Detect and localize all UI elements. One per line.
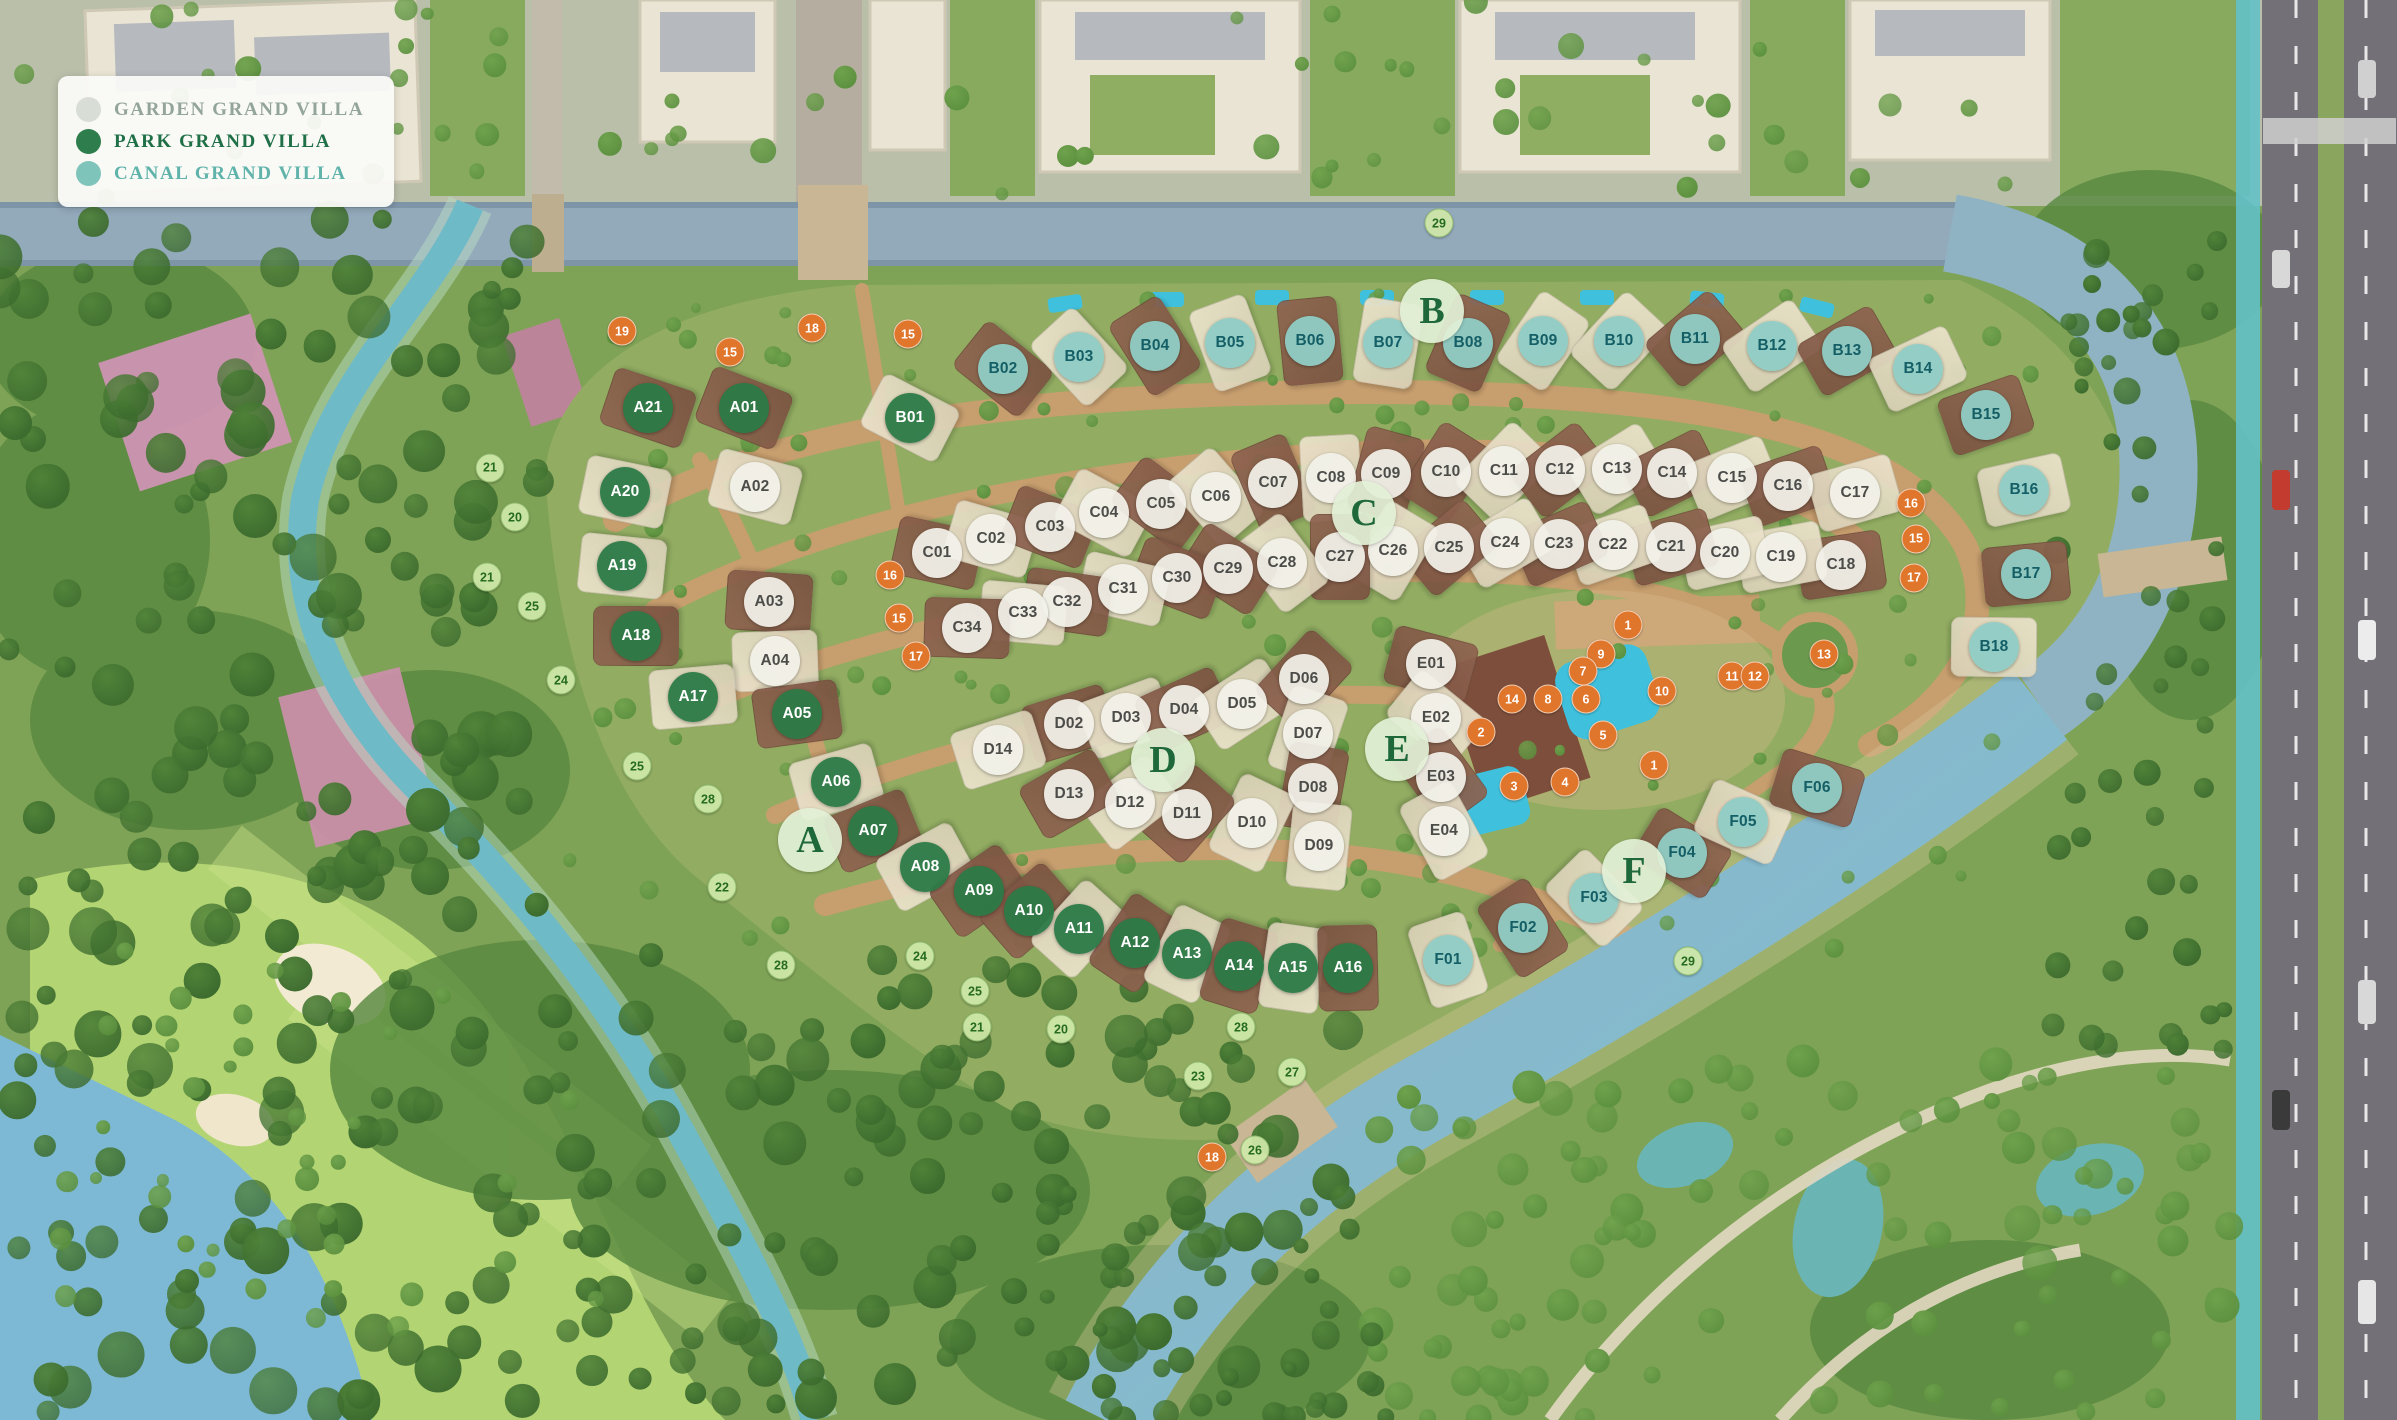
- villa-label-D09: D09: [1294, 821, 1344, 871]
- orange-marker-14: 14: [1498, 685, 1527, 714]
- villa-label-B04: B04: [1130, 321, 1180, 371]
- villa-label-C07: C07: [1248, 458, 1298, 508]
- green-marker-21: 21: [963, 1013, 992, 1042]
- villa-label-B02: B02: [978, 344, 1028, 394]
- green-marker-25: 25: [961, 977, 990, 1006]
- green-marker-23: 23: [1184, 1062, 1213, 1091]
- villa-label-D13: D13: [1044, 769, 1094, 819]
- villa-label-C18: C18: [1816, 540, 1866, 590]
- canal-dot-icon: [76, 161, 101, 186]
- green-marker-24: 24: [547, 666, 576, 695]
- villa-label-C34: C34: [942, 603, 992, 653]
- villa-label-F01: F01: [1423, 935, 1473, 985]
- villa-label-A09: A09: [954, 866, 1004, 916]
- villa-label-B05: B05: [1205, 318, 1255, 368]
- villa-label-D06: D06: [1279, 654, 1329, 704]
- villa-label-D14: D14: [973, 725, 1023, 775]
- villa-label-C31: C31: [1098, 564, 1148, 614]
- villa-label-F02: F02: [1498, 903, 1548, 953]
- green-marker-29: 29: [1425, 209, 1454, 238]
- villa-label-C28: C28: [1257, 538, 1307, 588]
- legend-item-park: PARK GRAND VILLA: [76, 129, 376, 154]
- section-letter-E: E: [1365, 717, 1429, 781]
- villa-label-C21: C21: [1646, 522, 1696, 572]
- orange-marker-12: 12: [1741, 662, 1770, 691]
- villa-label-C05: C05: [1136, 479, 1186, 529]
- green-marker-21: 21: [476, 453, 505, 482]
- green-marker-27: 27: [1278, 1058, 1307, 1087]
- orange-marker-15: 15: [1902, 524, 1931, 553]
- villa-label-C25: C25: [1424, 523, 1474, 573]
- orange-marker-2: 2: [1467, 718, 1496, 747]
- villa-label-C19: C19: [1756, 532, 1806, 582]
- villa-label-B12: B12: [1747, 321, 1797, 371]
- green-marker-20: 20: [1047, 1015, 1076, 1044]
- legend-item-canal: CANAL GRAND VILLA: [76, 161, 376, 186]
- villa-label-C32: C32: [1042, 577, 1092, 627]
- orange-marker-5: 5: [1589, 721, 1618, 750]
- orange-marker-17: 17: [902, 642, 931, 671]
- green-marker-24: 24: [906, 942, 935, 971]
- villa-label-A14: A14: [1214, 941, 1264, 991]
- villa-label-D07: D07: [1283, 709, 1333, 759]
- villa-label-B15: B15: [1961, 390, 2011, 440]
- green-marker-25: 25: [518, 592, 547, 621]
- villa-label-C30: C30: [1152, 553, 1202, 603]
- villa-label-A21: A21: [623, 383, 673, 433]
- villa-label-C03: C03: [1025, 502, 1075, 552]
- villa-label-B06: B06: [1285, 316, 1335, 366]
- villa-label-A20: A20: [600, 467, 650, 517]
- villa-label-A13: A13: [1162, 929, 1212, 979]
- orange-marker-18: 18: [1198, 1143, 1227, 1172]
- orange-marker-16: 16: [1897, 489, 1926, 518]
- villa-label-F05: F05: [1718, 797, 1768, 847]
- orange-marker-1: 1: [1614, 611, 1643, 640]
- orange-marker-7: 7: [1569, 657, 1598, 686]
- orange-marker-8: 8: [1534, 685, 1563, 714]
- section-letter-A: A: [778, 808, 842, 872]
- villa-label-C16: C16: [1763, 461, 1813, 511]
- section-letter-C: C: [1332, 481, 1396, 545]
- villa-label-B17: B17: [2001, 549, 2051, 599]
- villa-label-C06: C06: [1191, 472, 1241, 522]
- orange-marker-17: 17: [1900, 563, 1929, 592]
- green-marker-28: 28: [767, 951, 796, 980]
- villa-label-A16: A16: [1323, 943, 1373, 993]
- villa-label-B03: B03: [1054, 332, 1104, 382]
- villa-label-C20: C20: [1700, 528, 1750, 578]
- villa-label-D10: D10: [1227, 798, 1277, 848]
- masterplan-map: A01A02A03A04A05A06A07A08A09A10A11A12A13A…: [0, 0, 2397, 1420]
- orange-marker-13: 13: [1810, 640, 1839, 669]
- orange-marker-19: 19: [608, 317, 637, 346]
- garden-dot-icon: [76, 97, 101, 122]
- villa-label-C12: C12: [1535, 445, 1585, 495]
- orange-marker-16: 16: [876, 561, 905, 590]
- villa-label-A04: A04: [750, 636, 800, 686]
- legend: GARDEN GRAND VILLAPARK GRAND VILLACANAL …: [58, 76, 394, 207]
- villa-label-C04: C04: [1079, 488, 1129, 538]
- villa-label-C33: C33: [998, 588, 1048, 638]
- villa-label-B11: B11: [1670, 314, 1720, 364]
- villa-label-C23: C23: [1534, 519, 1584, 569]
- villa-label-A19: A19: [597, 541, 647, 591]
- villa-label-B13: B13: [1822, 326, 1872, 376]
- villa-label-B16: B16: [1999, 465, 2049, 515]
- villa-label-C02: C02: [966, 514, 1016, 564]
- green-marker-22: 22: [708, 873, 737, 902]
- green-marker-29: 29: [1673, 947, 1702, 976]
- villa-label-C24: C24: [1480, 518, 1530, 568]
- villa-label-C17: C17: [1830, 468, 1880, 518]
- villa-label-A01: A01: [719, 383, 769, 433]
- villa-label-B01: B01: [885, 393, 935, 443]
- green-marker-25: 25: [622, 752, 651, 781]
- villa-label-A12: A12: [1110, 918, 1160, 968]
- orange-marker-10: 10: [1648, 677, 1677, 706]
- villa-label-A05: A05: [772, 689, 822, 739]
- section-letter-B: B: [1400, 279, 1464, 343]
- villa-label-D02: D02: [1044, 699, 1094, 749]
- villa-label-D11: D11: [1162, 789, 1212, 839]
- villa-label-F06: F06: [1792, 763, 1842, 813]
- villa-label-C15: C15: [1707, 453, 1757, 503]
- legend-item-garden: GARDEN GRAND VILLA: [76, 97, 376, 122]
- villa-label-E04: E04: [1419, 806, 1469, 856]
- villa-label-A03: A03: [744, 577, 794, 627]
- villa-label-A15: A15: [1268, 943, 1318, 993]
- park-dot-icon: [76, 129, 101, 154]
- villa-label-C10: C10: [1421, 447, 1471, 497]
- villa-label-B14: B14: [1893, 344, 1943, 394]
- villa-label-D08: D08: [1288, 763, 1338, 813]
- orange-marker-18: 18: [798, 314, 827, 343]
- villa-label-A07: A07: [848, 806, 898, 856]
- villa-label-D05: D05: [1217, 679, 1267, 729]
- green-marker-21: 21: [473, 563, 502, 592]
- green-marker-26: 26: [1241, 1136, 1270, 1165]
- section-letter-D: D: [1131, 728, 1195, 792]
- orange-marker-15: 15: [885, 604, 914, 633]
- green-marker-28: 28: [694, 785, 723, 814]
- villa-label-A08: A08: [900, 842, 950, 892]
- villa-label-A06: A06: [811, 757, 861, 807]
- villa-label-B09: B09: [1518, 316, 1568, 366]
- villa-label-A10: A10: [1004, 886, 1054, 936]
- villa-label-A17: A17: [668, 672, 718, 722]
- orange-marker-15: 15: [894, 320, 923, 349]
- green-marker-20: 20: [501, 503, 530, 532]
- villa-label-A02: A02: [730, 462, 780, 512]
- villa-label-A18: A18: [611, 611, 661, 661]
- villa-label-E01: E01: [1406, 639, 1456, 689]
- villa-label-C13: C13: [1592, 444, 1642, 494]
- villa-label-C14: C14: [1647, 448, 1697, 498]
- orange-marker-15: 15: [716, 338, 745, 367]
- villa-label-A11: A11: [1054, 904, 1104, 954]
- orange-marker-1: 1: [1640, 751, 1669, 780]
- villa-label-C29: C29: [1203, 544, 1253, 594]
- legend-label: PARK GRAND VILLA: [114, 131, 331, 153]
- legend-label: CANAL GRAND VILLA: [114, 163, 347, 185]
- villa-label-C01: C01: [912, 528, 962, 578]
- orange-marker-4: 4: [1551, 768, 1580, 797]
- villa-label-C11: C11: [1479, 446, 1529, 496]
- legend-label: GARDEN GRAND VILLA: [114, 99, 364, 121]
- section-letter-F: F: [1602, 839, 1666, 903]
- villa-label-C22: C22: [1588, 520, 1638, 570]
- orange-marker-3: 3: [1500, 772, 1529, 801]
- villa-label-B18: B18: [1969, 622, 2019, 672]
- villa-label-B10: B10: [1594, 316, 1644, 366]
- green-marker-28: 28: [1227, 1013, 1256, 1042]
- orange-marker-6: 6: [1572, 685, 1601, 714]
